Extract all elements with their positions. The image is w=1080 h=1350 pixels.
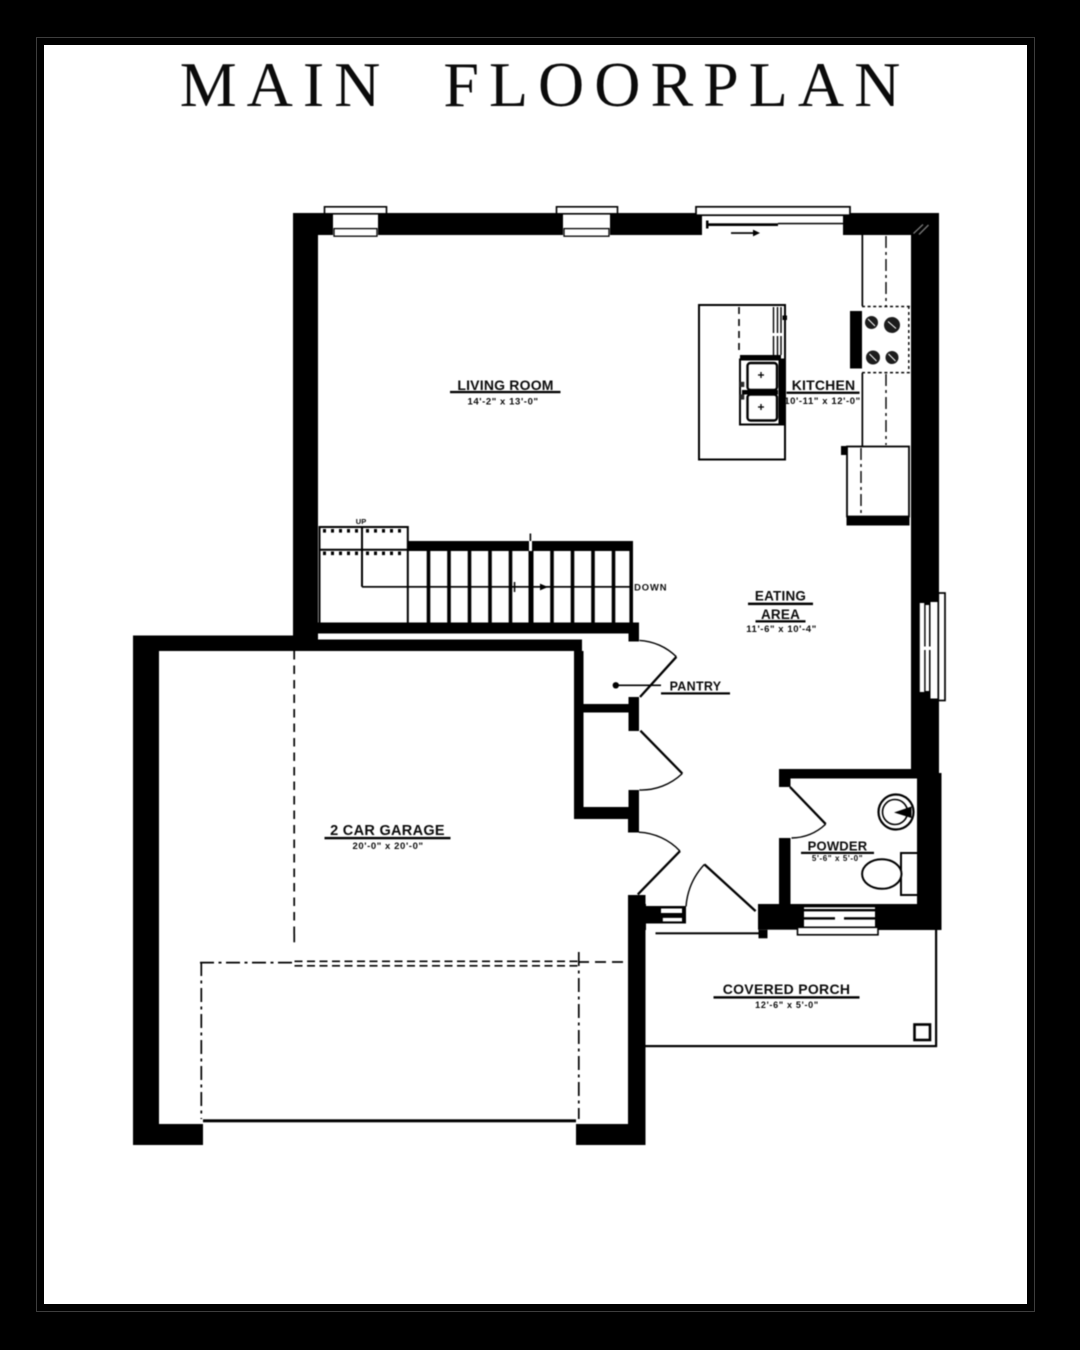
svg-text:10'-11" x 12'-0": 10'-11" x 12'-0": [784, 396, 860, 407]
svg-text:COVERED PORCH: COVERED PORCH: [723, 981, 851, 997]
svg-text:POWDER: POWDER: [808, 838, 868, 853]
svg-text:2 CAR GARAGE: 2 CAR GARAGE: [330, 823, 445, 839]
svg-text:5'-6" x 5'-0": 5'-6" x 5'-0": [812, 854, 863, 863]
svg-text:20'-0" x 20'-0": 20'-0" x 20'-0": [352, 841, 423, 852]
svg-text:LIVING ROOM: LIVING ROOM: [457, 377, 553, 393]
svg-text:AREA: AREA: [761, 607, 800, 622]
svg-text:12'-6" x 5'-0": 12'-6" x 5'-0": [755, 1000, 819, 1010]
svg-text:11'-6" x 10'-4": 11'-6" x 10'-4": [746, 624, 817, 635]
svg-text:DOWN: DOWN: [634, 581, 667, 592]
svg-text:UP: UP: [356, 517, 366, 526]
svg-text:14'-2" x 13'-0": 14'-2" x 13'-0": [467, 397, 538, 408]
svg-text:KITCHEN: KITCHEN: [792, 377, 856, 393]
svg-text:EATING: EATING: [755, 589, 806, 604]
svg-text:PANTRY: PANTRY: [670, 680, 722, 694]
